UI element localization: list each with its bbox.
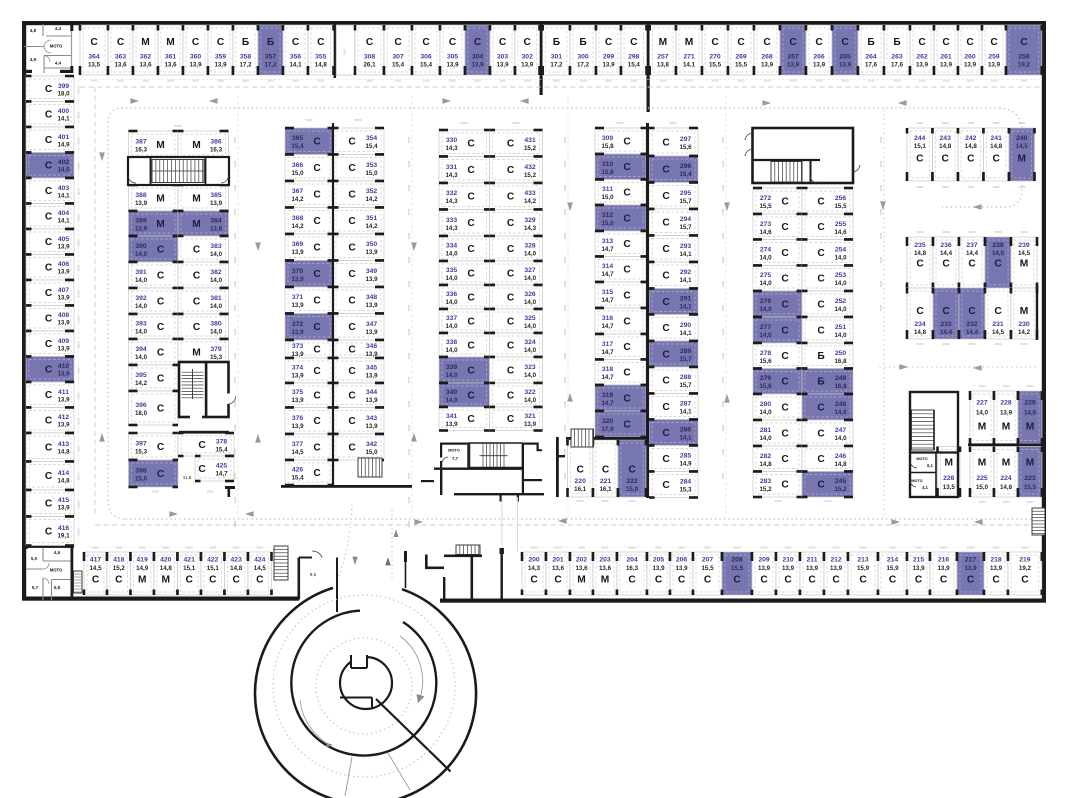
svg-text:14,0: 14,0	[759, 255, 772, 262]
svg-text:14,7: 14,7	[601, 374, 614, 381]
svg-text:14,2: 14,2	[291, 223, 304, 230]
svg-text:15,2: 15,2	[759, 486, 772, 493]
svg-text:С: С	[348, 269, 356, 280]
svg-text:15,4: 15,4	[420, 62, 433, 69]
svg-text:С: С	[662, 349, 670, 360]
svg-text:424: 424	[254, 557, 266, 564]
svg-text:С: С	[474, 37, 482, 48]
svg-text:2600: 2600	[407, 352, 411, 359]
svg-text:328: 328	[524, 243, 536, 250]
svg-text:374: 374	[292, 365, 304, 372]
svg-text:14,6: 14,6	[834, 229, 847, 236]
svg-text:С: С	[942, 154, 950, 165]
svg-text:С: С	[817, 299, 825, 310]
svg-text:13,9: 13,9	[57, 345, 70, 352]
svg-text:384: 384	[210, 218, 222, 225]
svg-text:14,0: 14,0	[135, 251, 148, 258]
svg-text:2600: 2600	[217, 79, 224, 83]
svg-text:359: 359	[215, 54, 227, 61]
svg-text:2600: 2600	[563, 208, 567, 215]
svg-text:2600: 2600	[563, 400, 567, 407]
svg-text:232: 232	[966, 321, 978, 328]
svg-text:378: 378	[216, 439, 228, 446]
svg-text:С: С	[348, 391, 356, 402]
svg-text:264: 264	[865, 54, 877, 61]
svg-text:14,8: 14,8	[160, 565, 173, 572]
svg-text:301: 301	[551, 54, 563, 61]
svg-text:2600: 2600	[942, 121, 949, 125]
svg-text:С: С	[763, 37, 771, 48]
svg-text:2600: 2600	[879, 232, 883, 239]
svg-text:С: С	[623, 162, 631, 173]
svg-text:223: 223	[1024, 475, 1036, 482]
svg-text:247: 247	[835, 427, 847, 434]
svg-text:14,6: 14,6	[759, 229, 772, 236]
svg-text:13,9: 13,9	[135, 226, 148, 233]
svg-text:13,9: 13,9	[291, 373, 304, 380]
svg-text:13,6: 13,6	[599, 565, 612, 572]
svg-text:13,6: 13,6	[575, 565, 588, 572]
svg-text:13,9: 13,9	[787, 62, 800, 69]
svg-text:2600: 2600	[704, 546, 711, 550]
svg-text:С: С	[817, 248, 825, 259]
svg-text:С: С	[366, 37, 374, 48]
svg-text:204: 204	[626, 557, 638, 564]
svg-text:302: 302	[522, 54, 534, 61]
svg-text:14,1: 14,1	[683, 62, 696, 69]
svg-text:15,3: 15,3	[679, 487, 692, 494]
svg-text:418: 418	[113, 557, 125, 564]
svg-text:С: С	[817, 274, 825, 285]
svg-text:С: С	[662, 402, 670, 413]
svg-text:С: С	[507, 292, 515, 303]
svg-text:2600: 2600	[407, 136, 411, 143]
svg-text:303: 303	[497, 54, 509, 61]
svg-text:206: 206	[676, 557, 688, 564]
svg-text:13,9: 13,9	[761, 62, 774, 69]
svg-text:2600: 2600	[993, 546, 1000, 550]
svg-text:14,0: 14,0	[759, 409, 772, 416]
svg-text:15,4: 15,4	[365, 143, 378, 150]
svg-text:422: 422	[207, 557, 219, 564]
svg-text:14,0: 14,0	[135, 303, 148, 310]
svg-text:17,2: 17,2	[550, 62, 563, 69]
svg-text:С: С	[628, 465, 636, 476]
svg-text:5400: 5400	[306, 118, 313, 122]
svg-text:С: С	[45, 237, 53, 248]
svg-text:368: 368	[292, 215, 304, 222]
svg-text:5,7: 5,7	[32, 585, 39, 590]
svg-text:С: С	[781, 248, 789, 259]
svg-text:Б: Б	[553, 37, 560, 48]
svg-text:13,9: 13,9	[652, 565, 665, 572]
svg-text:2600: 2600	[809, 546, 816, 550]
svg-text:326: 326	[524, 291, 536, 298]
svg-text:18,0: 18,0	[135, 410, 148, 417]
svg-text:13,9: 13,9	[990, 565, 1003, 572]
svg-text:15,1: 15,1	[207, 565, 220, 572]
svg-text:397: 397	[135, 441, 147, 448]
svg-text:15,0: 15,0	[601, 194, 614, 201]
svg-text:255: 255	[835, 221, 847, 228]
svg-text:298: 298	[628, 54, 640, 61]
svg-text:14,3: 14,3	[445, 145, 458, 152]
svg-text:С: С	[817, 325, 825, 336]
svg-text:С: С	[967, 154, 975, 165]
svg-text:С: С	[317, 37, 325, 48]
svg-text:2600: 2600	[242, 79, 249, 83]
svg-text:2600: 2600	[209, 546, 216, 550]
svg-text:224: 224	[1000, 475, 1012, 482]
svg-text:316: 316	[602, 315, 614, 322]
svg-text:18,0: 18,0	[57, 90, 70, 97]
svg-text:366: 366	[292, 162, 304, 169]
svg-text:214: 214	[887, 557, 899, 564]
svg-text:С: С	[662, 191, 670, 202]
svg-text:2600: 2600	[91, 79, 98, 83]
svg-text:15,5: 15,5	[731, 565, 744, 572]
svg-text:212: 212	[830, 557, 842, 564]
svg-text:С: С	[859, 575, 867, 586]
svg-text:С: С	[623, 316, 631, 327]
svg-text:2600: 2600	[775, 499, 782, 503]
svg-text:М: М	[141, 37, 150, 48]
svg-text:2600: 2600	[563, 160, 567, 167]
svg-text:С: С	[394, 37, 402, 48]
svg-text:13,9: 13,9	[214, 62, 227, 69]
svg-text:2600: 2600	[317, 79, 324, 83]
svg-text:237: 237	[966, 242, 978, 249]
svg-text:С: С	[781, 222, 789, 233]
svg-text:С: С	[467, 292, 475, 303]
svg-text:262: 262	[916, 54, 928, 61]
svg-text:С: С	[662, 323, 670, 334]
svg-text:С: С	[916, 306, 924, 317]
svg-text:2600: 2600	[256, 546, 263, 550]
svg-text:2600: 2600	[721, 376, 725, 383]
svg-text:15,3: 15,3	[210, 354, 223, 361]
svg-text:С: С	[967, 575, 975, 586]
svg-text:С: С	[942, 306, 950, 317]
svg-text:14,0: 14,0	[524, 372, 537, 379]
svg-text:386: 386	[210, 139, 222, 146]
svg-text:С: С	[623, 239, 631, 250]
svg-text:392: 392	[135, 295, 147, 302]
svg-text:2600: 2600	[967, 79, 974, 83]
svg-text:2600: 2600	[943, 230, 950, 234]
svg-text:379: 379	[210, 346, 222, 353]
svg-text:364: 364	[88, 54, 100, 61]
svg-text:315: 315	[602, 289, 614, 296]
svg-text:322: 322	[524, 389, 536, 396]
svg-text:2600: 2600	[833, 546, 840, 550]
svg-text:2600: 2600	[407, 208, 411, 215]
svg-text:402: 402	[58, 159, 70, 166]
svg-text:416: 416	[58, 525, 70, 532]
svg-text:398: 398	[135, 468, 147, 475]
svg-text:Б: Б	[817, 351, 824, 362]
svg-text:С: С	[918, 37, 926, 48]
svg-text:2600: 2600	[233, 328, 237, 335]
svg-text:С: С	[193, 270, 201, 281]
svg-text:2600: 2600	[407, 520, 411, 527]
svg-text:15,5: 15,5	[759, 203, 772, 210]
svg-text:С: С	[467, 139, 475, 150]
svg-text:Б: Б	[867, 37, 874, 48]
svg-text:2600: 2600	[407, 448, 411, 455]
svg-text:351: 351	[366, 215, 378, 222]
svg-text:338: 338	[446, 339, 458, 346]
svg-text:382: 382	[210, 269, 222, 276]
svg-text:2600: 2600	[192, 79, 199, 83]
svg-text:С: С	[45, 339, 53, 350]
svg-text:С: С	[1021, 575, 1029, 586]
svg-text:221: 221	[600, 478, 612, 485]
svg-text:2600: 2600	[580, 79, 587, 83]
svg-text:2600: 2600	[1021, 546, 1028, 550]
svg-text:13,9: 13,9	[365, 302, 378, 309]
svg-text:2600: 2600	[233, 352, 237, 359]
svg-text:С: С	[662, 271, 670, 282]
svg-text:С: С	[784, 575, 792, 586]
svg-text:С: С	[193, 244, 201, 255]
svg-text:13,9: 13,9	[365, 249, 378, 256]
svg-text:2600: 2600	[233, 496, 237, 503]
svg-text:М: М	[192, 193, 201, 204]
svg-text:14,0: 14,0	[445, 347, 458, 354]
svg-text:272: 272	[760, 195, 772, 202]
svg-text:С: С	[915, 575, 923, 586]
svg-text:14,0: 14,0	[834, 409, 847, 416]
svg-text:14,3: 14,3	[528, 565, 541, 572]
svg-text:15,7: 15,7	[679, 382, 692, 389]
svg-text:354: 354	[366, 135, 378, 142]
svg-text:432: 432	[524, 164, 536, 171]
svg-text:14,0: 14,0	[834, 280, 847, 287]
svg-text:216: 216	[938, 557, 950, 564]
svg-text:420: 420	[160, 557, 172, 564]
svg-text:426: 426	[292, 467, 304, 474]
svg-text:4,4: 4,4	[55, 26, 62, 31]
svg-text:13,9: 13,9	[937, 565, 950, 572]
svg-text:М: М	[1002, 458, 1011, 469]
svg-text:13,9: 13,9	[916, 62, 929, 69]
svg-text:14,0: 14,0	[759, 435, 772, 442]
svg-text:2600: 2600	[879, 136, 883, 143]
svg-text:С: С	[808, 575, 816, 586]
svg-text:С: С	[467, 192, 475, 203]
svg-text:С: С	[781, 325, 789, 336]
svg-text:14,0: 14,0	[445, 397, 458, 404]
svg-text:2600: 2600	[919, 79, 926, 83]
svg-text:С: С	[781, 402, 789, 413]
svg-text:2600: 2600	[995, 342, 1002, 346]
svg-text:2600: 2600	[233, 472, 237, 479]
svg-text:С: С	[507, 192, 515, 203]
svg-text:340: 340	[446, 389, 458, 396]
svg-text:2600: 2600	[721, 304, 725, 311]
svg-text:С: С	[217, 37, 225, 48]
svg-text:С: С	[662, 297, 670, 308]
svg-text:2600: 2600	[721, 256, 725, 263]
svg-text:М: М	[192, 140, 201, 151]
svg-text:С: С	[499, 37, 507, 48]
svg-text:2600: 2600	[407, 304, 411, 311]
svg-text:2600: 2600	[407, 472, 411, 479]
svg-text:С: С	[45, 84, 53, 95]
svg-text:231: 231	[992, 321, 1004, 328]
svg-text:2600: 2600	[563, 136, 567, 143]
svg-text:201: 201	[552, 557, 564, 564]
svg-text:14,7: 14,7	[601, 246, 614, 253]
svg-text:257: 257	[657, 54, 669, 61]
svg-text:309: 309	[602, 135, 614, 142]
svg-text:2600: 2600	[186, 546, 193, 550]
svg-text:245: 245	[835, 478, 847, 485]
svg-text:С: С	[737, 37, 745, 48]
svg-text:395: 395	[135, 372, 147, 379]
svg-text:2600: 2600	[790, 79, 797, 83]
svg-text:С: С	[467, 165, 475, 176]
svg-text:13,5: 13,5	[88, 62, 101, 69]
svg-text:14,0: 14,0	[210, 329, 223, 336]
svg-text:14,8: 14,8	[759, 461, 772, 468]
svg-text:2600: 2600	[738, 79, 745, 83]
svg-text:280: 280	[760, 401, 772, 408]
svg-text:2600: 2600	[563, 472, 567, 479]
svg-text:13,9: 13,9	[964, 565, 977, 572]
svg-text:2600: 2600	[1003, 500, 1010, 504]
svg-text:277: 277	[760, 324, 772, 331]
svg-text:401: 401	[58, 134, 70, 141]
svg-text:285: 285	[680, 453, 692, 460]
svg-text:14,5: 14,5	[1018, 250, 1031, 257]
svg-text:14,2: 14,2	[291, 196, 304, 203]
svg-text:14,1: 14,1	[679, 409, 692, 416]
svg-text:2600: 2600	[563, 304, 567, 311]
svg-text:14,2: 14,2	[524, 198, 537, 205]
svg-text:С: С	[467, 316, 475, 327]
svg-text:260: 260	[964, 54, 976, 61]
svg-text:219: 219	[1019, 557, 1031, 564]
svg-text:352: 352	[366, 188, 378, 195]
svg-text:15,5: 15,5	[1024, 484, 1037, 491]
svg-text:С: С	[157, 469, 165, 480]
svg-text:2600: 2600	[734, 546, 741, 550]
svg-text:259: 259	[988, 54, 1000, 61]
svg-text:421: 421	[184, 557, 196, 564]
svg-text:410: 410	[58, 363, 70, 370]
svg-text:2600: 2600	[92, 546, 99, 550]
svg-text:14,8: 14,8	[57, 449, 70, 456]
svg-text:2600: 2600	[407, 496, 411, 503]
svg-text:14,1: 14,1	[679, 330, 692, 337]
svg-text:14,0: 14,0	[834, 255, 847, 262]
svg-text:С: С	[623, 393, 631, 404]
svg-text:15,1: 15,1	[914, 143, 927, 150]
svg-text:200: 200	[528, 557, 540, 564]
svg-text:372: 372	[292, 321, 304, 328]
svg-text:377: 377	[292, 441, 304, 448]
svg-text:2600: 2600	[233, 304, 237, 311]
svg-text:2600: 2600	[659, 79, 666, 83]
svg-text:14,0: 14,0	[524, 323, 537, 330]
svg-text:15,0: 15,0	[291, 170, 304, 177]
svg-text:С: С	[313, 216, 321, 227]
svg-text:253: 253	[835, 272, 847, 279]
svg-text:С: С	[467, 244, 475, 255]
svg-text:2600: 2600	[942, 185, 949, 189]
svg-text:С: С	[577, 465, 585, 476]
svg-text:14,8: 14,8	[914, 329, 927, 336]
svg-text:2600: 2600	[423, 79, 430, 83]
svg-text:С: С	[530, 575, 538, 586]
svg-text:271: 271	[683, 54, 695, 61]
svg-text:266: 266	[813, 54, 825, 61]
svg-text:2600: 2600	[721, 472, 725, 479]
svg-text:305: 305	[447, 54, 459, 61]
svg-text:16,3: 16,3	[626, 565, 639, 572]
svg-text:С: С	[623, 342, 631, 353]
svg-text:293: 293	[680, 243, 692, 250]
svg-text:327: 327	[524, 267, 536, 274]
svg-text:15,0: 15,0	[626, 486, 639, 493]
svg-text:2600: 2600	[879, 304, 883, 311]
svg-text:МОТО: МОТО	[50, 568, 63, 573]
svg-text:М: М	[166, 37, 175, 48]
svg-text:390: 390	[135, 243, 147, 250]
svg-text:2600: 2600	[563, 376, 567, 383]
svg-text:15,0: 15,0	[135, 476, 148, 483]
svg-text:282: 282	[760, 453, 772, 460]
svg-text:С: С	[449, 37, 457, 48]
svg-text:335: 335	[446, 267, 458, 274]
svg-text:С: С	[760, 575, 768, 586]
svg-text:226: 226	[943, 475, 955, 482]
svg-text:С: С	[45, 526, 53, 537]
svg-text:218: 218	[990, 557, 1002, 564]
svg-text:2600: 2600	[868, 79, 875, 83]
svg-text:С: С	[348, 243, 356, 254]
svg-text:408: 408	[58, 312, 70, 319]
svg-text:241: 241	[991, 135, 1003, 142]
svg-text:16,8: 16,8	[834, 358, 847, 365]
svg-text:С: С	[940, 575, 948, 586]
svg-text:13,9: 13,9	[57, 422, 70, 429]
svg-text:С: С	[313, 344, 321, 355]
svg-text:С: С	[348, 190, 356, 201]
svg-text:393: 393	[135, 321, 147, 328]
svg-text:14,0: 14,0	[524, 397, 537, 404]
svg-text:2600: 2600	[879, 208, 883, 215]
svg-text:С: С	[157, 244, 165, 255]
svg-text:С: С	[623, 419, 631, 430]
svg-text:2600: 2600	[916, 121, 923, 125]
svg-text:383: 383	[210, 243, 222, 250]
svg-text:14,0: 14,0	[57, 167, 70, 174]
svg-text:2600: 2600	[267, 79, 274, 83]
svg-text:С: С	[313, 163, 321, 174]
svg-text:2600: 2600	[395, 79, 402, 83]
svg-text:284: 284	[680, 479, 692, 486]
svg-text:369: 369	[292, 241, 304, 248]
svg-text:14,1: 14,1	[679, 304, 692, 311]
svg-text:14,8: 14,8	[57, 477, 70, 484]
svg-text:2600: 2600	[407, 280, 411, 287]
svg-text:С: С	[832, 575, 840, 586]
svg-text:318: 318	[602, 366, 614, 373]
svg-text:14,0: 14,0	[834, 332, 847, 339]
